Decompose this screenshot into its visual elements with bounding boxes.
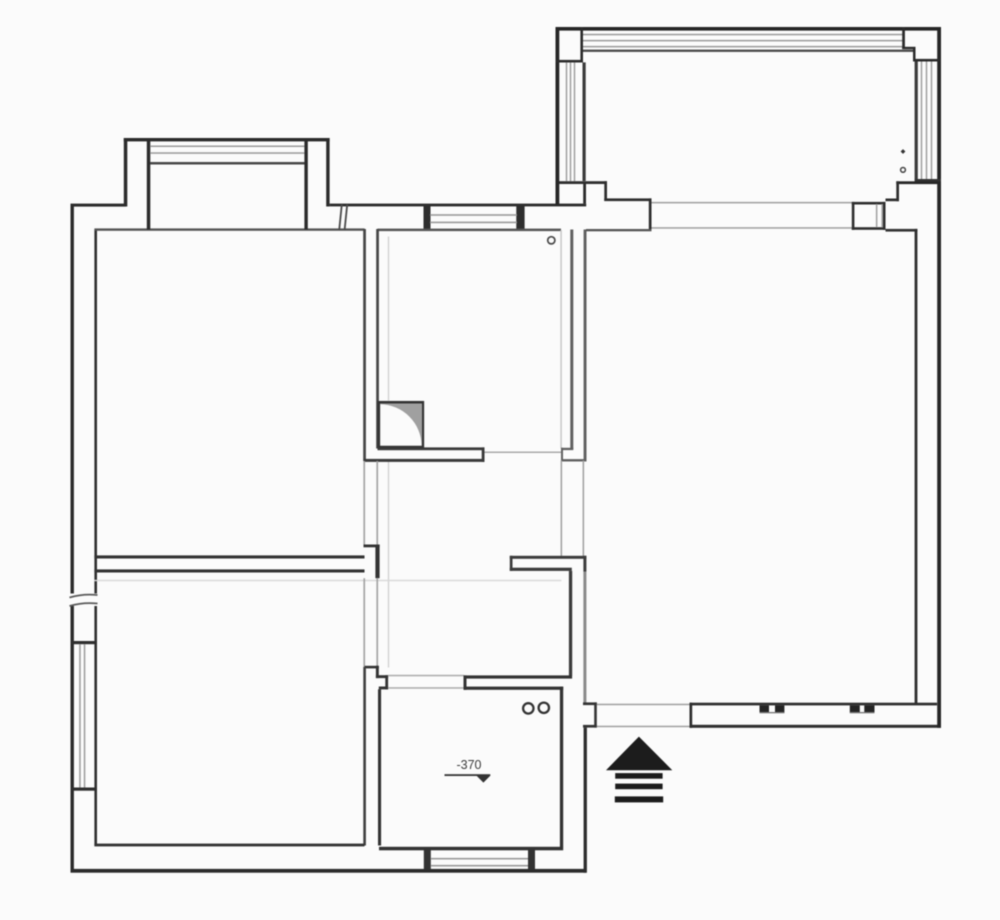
svg-text:-370: -370 <box>456 758 481 772</box>
